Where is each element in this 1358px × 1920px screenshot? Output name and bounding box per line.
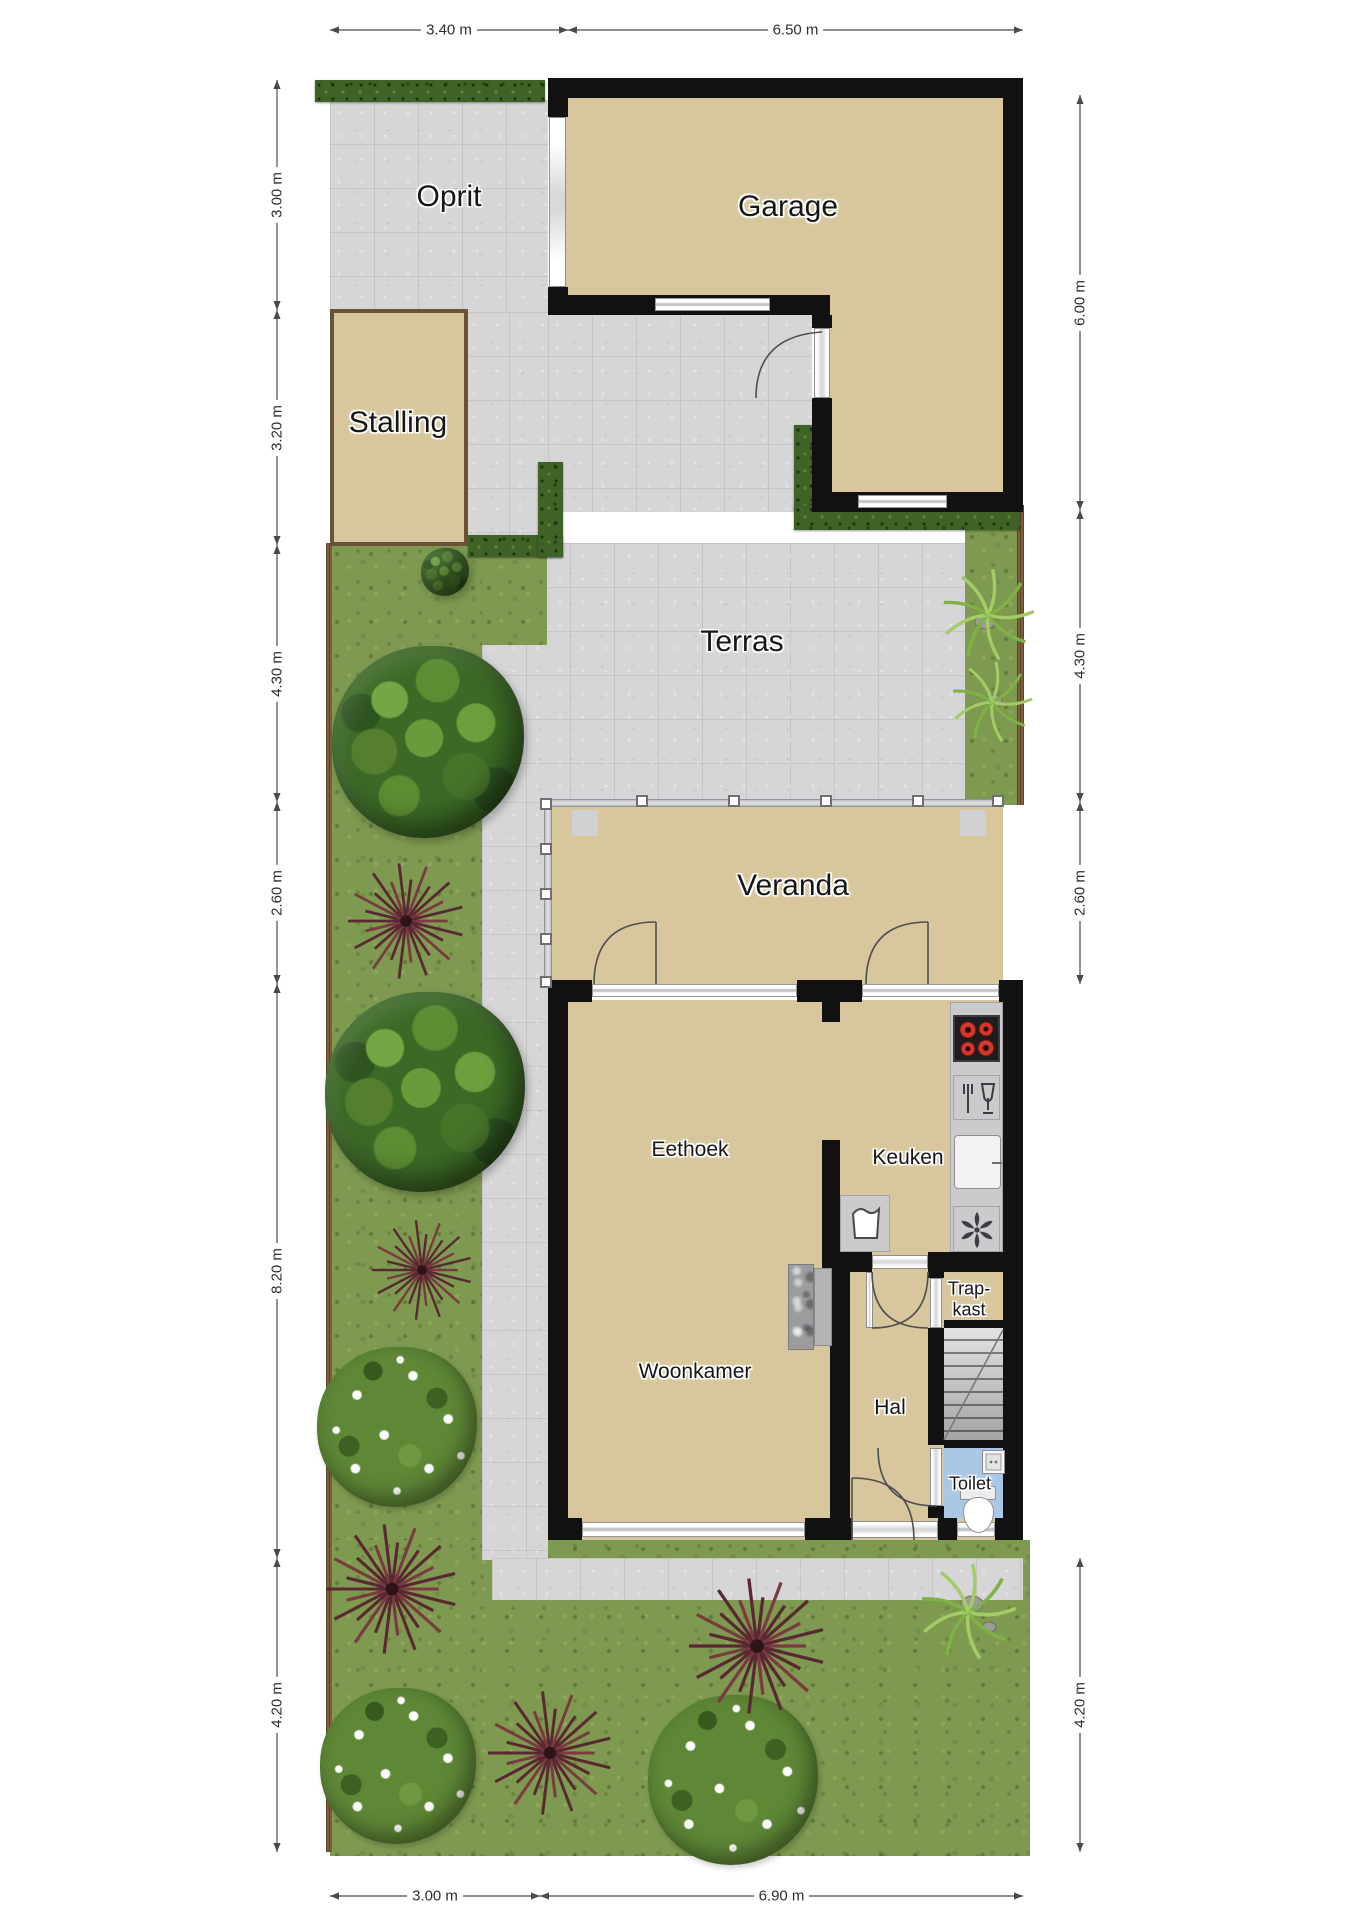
glazing-post [540,933,552,945]
wall-ek-stub [822,1002,840,1022]
dimension-label: 6.50 m [768,21,824,40]
wall-house-top-pier [797,980,862,1002]
garage-door [549,117,566,287]
keuken-door-leaf [866,1272,873,1328]
glazing-post [540,798,552,810]
dimension-label: 2.60 m [268,865,287,921]
room-label-hal: Hal [874,1396,906,1420]
veranda-glass-top [544,799,1004,807]
wall-woonkamer-hal [830,1272,850,1518]
window-woonkamer [582,1522,805,1537]
hedge-l-vertical [538,462,563,557]
hedge-garage-left [794,425,812,512]
window-house-top-2 [862,984,999,997]
glazing-post [540,976,552,988]
dimension-label: 4.30 m [1071,628,1090,684]
room-label-stalling: Stalling [349,406,447,440]
room-label-oprit: Oprit [416,180,481,214]
floorplan-canvas: Oprit Garage Stalling Terras Veranda Eet… [0,0,1358,1920]
extractor-fan-icon [953,1206,1000,1252]
room-label-terras: Terras [700,625,783,659]
dimension-label: 6.00 m [1071,275,1090,331]
wall-house-bottom-d [995,1518,1023,1540]
dimension-label: 3.00 m [407,1887,463,1906]
wall-house-top-right [999,980,1023,1002]
hand-basin-icon [982,1450,1005,1474]
room-label-woonkamer: Woonkamer [639,1360,752,1384]
plan-geometry-layer [0,0,1358,1920]
front-door [852,1521,938,1538]
window-garage-inner [655,298,770,311]
wall-house-right [1003,1002,1023,1540]
glazing-post [540,888,552,900]
keuken-door [872,1255,928,1269]
cabinet-marble [788,1264,814,1350]
dimension-label: 6.90 m [754,1887,810,1906]
window-house-top-1 [592,984,797,997]
window-wing-bottom [858,495,947,508]
stairs-icon [944,1328,1003,1440]
terras-corridor [465,312,548,545]
fence-right [1017,505,1024,805]
wall-garage-right [1003,98,1023,510]
wall-keuken-bottom-b [928,1252,1003,1272]
wall-hal-right-c [928,1506,944,1518]
dimension-label: 2.60 m [1071,865,1090,921]
wall-stairs-toilet [944,1440,1003,1448]
dishwasher-icon [953,1075,1000,1120]
wall-wing-left-a [812,315,832,328]
glazing-post [728,795,740,807]
room-label-garage: Garage [738,190,838,224]
garden-right-strip [965,528,1018,805]
wall-garage-left-a [548,98,568,117]
garage-wing-floor [824,300,1010,495]
room-label-trapkast-line2: kast [952,1300,985,1321]
wall-trapkast-stairs [944,1320,1003,1328]
dimension-label: 8.20 m [268,1243,287,1299]
glazing-post [636,795,648,807]
veranda-corner-tile-right [960,810,986,836]
wall-house-bottom-b [805,1518,852,1540]
wall-eethoek-keuken [822,1140,840,1252]
dimension-label: 4.30 m [268,646,287,702]
door-garage-terras [814,328,830,398]
cabinet-front [814,1268,832,1346]
room-label-trapkast-line1: Trap- [948,1279,990,1300]
dimension-label: 3.40 m [421,21,477,40]
dimension-label: 4.20 m [1071,1677,1090,1733]
room-label-keuken: Keuken [872,1146,943,1170]
wall-garage-top [548,78,1023,98]
wall-house-top-left [548,980,592,1002]
wall-house-left [548,1002,568,1540]
washing-machine-icon [840,1195,890,1252]
wall-hal-right-b [928,1328,944,1445]
stove-icon [953,1015,1000,1062]
terras-path-left [482,802,548,1560]
terras-path-bottom [492,1558,1023,1600]
glazing-post [912,795,924,807]
terras-main [482,543,965,804]
dimension-label: 4.20 m [268,1677,287,1733]
glazing-post [992,795,1004,807]
garden-patch [482,545,547,645]
dimension-label: 3.20 m [268,400,287,456]
room-label-veranda: Veranda [737,869,849,903]
room-label-toilet: Toilet [949,1474,991,1495]
dimension-label: 3.00 m [268,167,287,223]
veranda-corner-tile-left [572,810,598,836]
wall-house-bottom-c [938,1518,957,1540]
room-label-eethoek: Eethoek [651,1138,728,1162]
glazing-post [820,795,832,807]
sink-icon [954,1135,1001,1189]
hedge-top [315,80,545,102]
terras-garage-cut [548,312,812,512]
glazing-post [540,843,552,855]
toilet-door [930,1448,942,1506]
wall-house-bottom-a [548,1518,582,1540]
trapkast-door [930,1278,942,1328]
